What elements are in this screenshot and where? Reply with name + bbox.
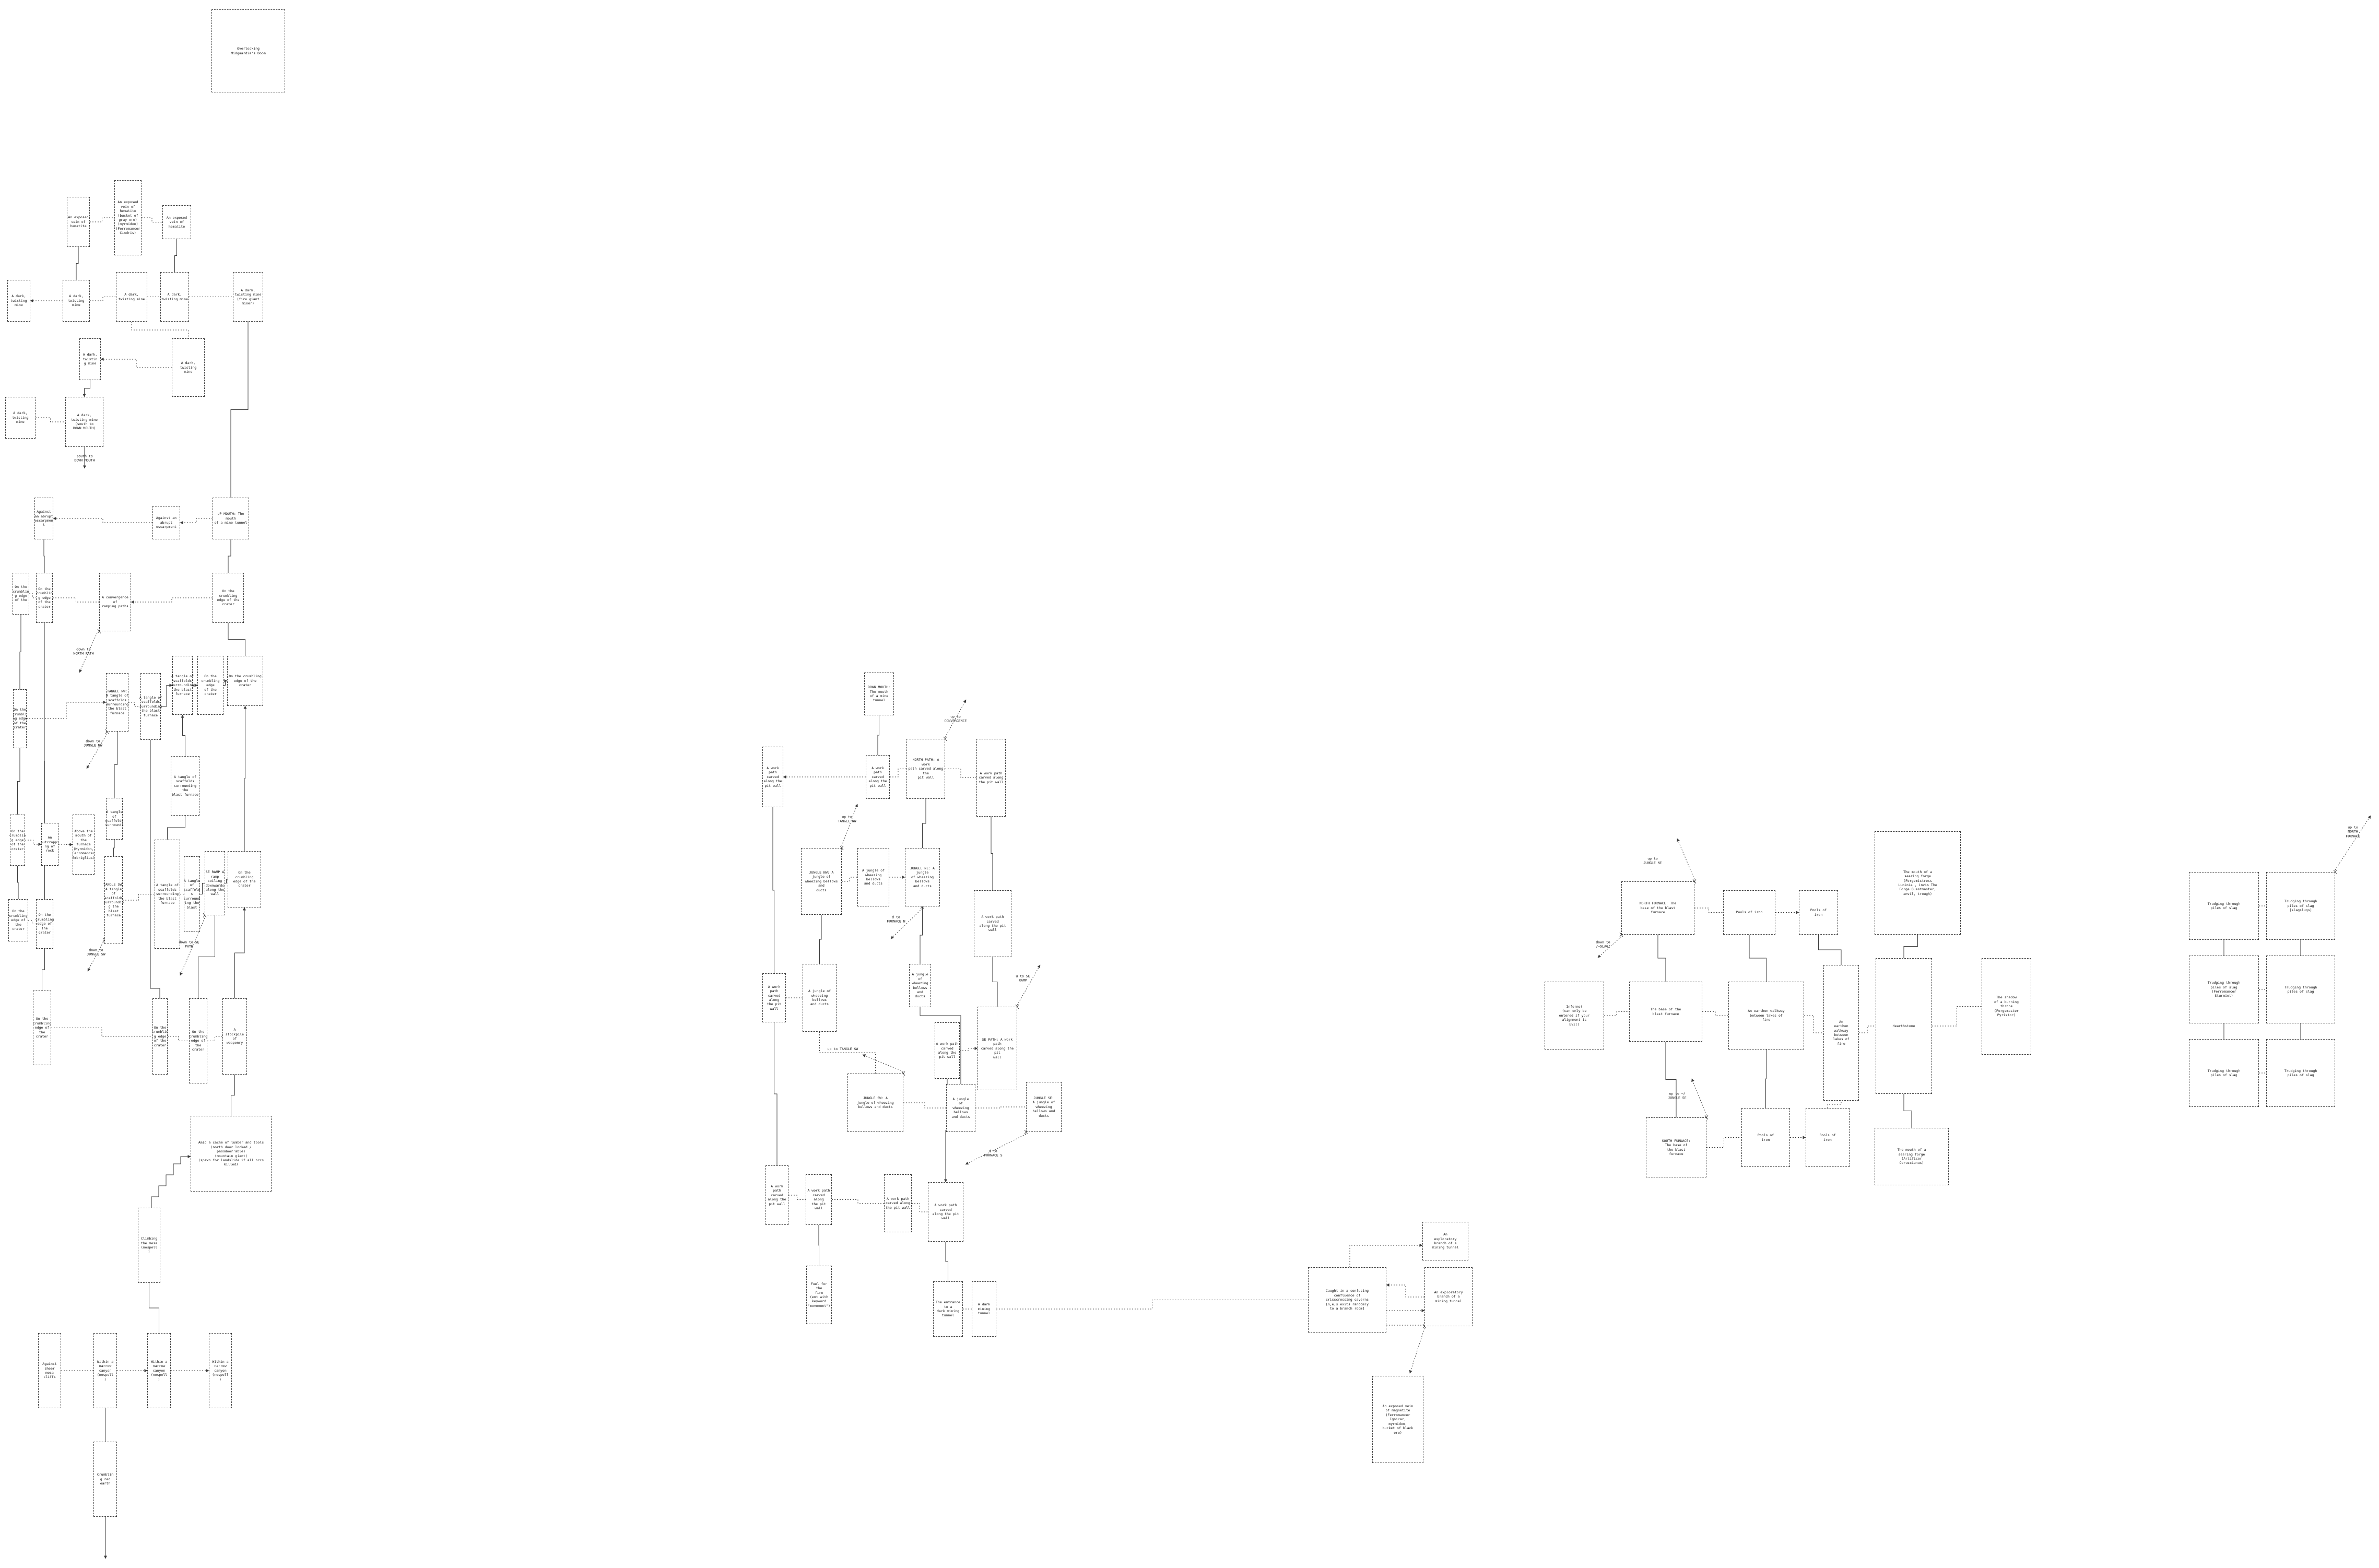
room-box-b79: Pools of iron [1723,890,1775,935]
room-box-b81: The mouth of a searing forge (Forgemistr… [1875,831,1961,935]
connector [207,1036,222,1041]
connector [231,1075,235,1116]
room-box-b69: A work path carved along the pit wall [884,1174,912,1232]
connector [1904,935,1918,958]
connector [863,1055,903,1071]
connector [25,840,41,844]
connector [90,218,114,222]
room-box-b80: Pools of iron [1799,890,1838,935]
room-box-b61: A jungle of wheezing bellows and ducts [909,964,931,1007]
connector [2335,816,2371,870]
room-box-b43: Amid a cache of lumber and tools (north … [191,1116,272,1192]
room-box-b73: A dark mining tunnel [972,1281,996,1337]
connector [85,380,90,397]
room-box-b75: An exploratory branch of a mining tunnel [1422,1222,1468,1260]
room-box-b15: Against an abrupt escarpment [152,506,180,539]
room-box-b50: DOWN MOUTH: The mouth of a mine tunnel [864,673,894,715]
room-box-b02: An exposed vein of hematite [67,197,90,247]
room-box-b65: A jungle of wheezing bellows and ducts [946,1084,975,1132]
connector [1904,1094,1912,1128]
room-box-b14: Against an abrupt escarpmen t [34,498,53,539]
connector [114,840,115,856]
connector [58,844,73,845]
room-box-b66: JUNGLE SE: A jungle of wheezing bellows … [1026,1082,1062,1132]
room-box-b10: A dark, twistin g mine [79,338,101,380]
connector [132,322,189,338]
ramp-label: south to DOWN MOUTH [74,454,95,463]
room-box-b40: On the crumblin g edge of the crater [152,998,168,1075]
room-box-b63: SE PATH: A work path carved along the pi… [977,1007,1017,1090]
connector [890,769,906,777]
room-box-b87: The shadow of a burning throne (Forgemas… [1982,958,2031,1055]
room-box-b27: A tangle of scaffolds surroundi [106,798,123,840]
room-box-b35: SE RAMP A ramp coiling downwards along t… [205,851,225,915]
connector [20,615,21,689]
room-box-b24: A tangle of scaffolds surrounding the bl… [172,656,193,715]
room-box-b68: A work path carved along the pit wall [806,1174,832,1225]
room-box-b39: On the crumbling edge of the crater [33,991,51,1065]
room-box-b74: Caught in a confusing confluence of cris… [1308,1267,1386,1333]
room-box-b54: A work path carved along the pit wall [976,739,1006,817]
room-box-b90: Pools of iron [1806,1108,1850,1167]
connector [53,518,152,523]
ramp-label: up to TANGLE NW [838,815,856,824]
ramp-label: down to NORTH PATH [73,647,93,656]
room-box-b91: The mouth of a searing forge (Artificer … [1875,1128,1949,1185]
connector [131,598,213,602]
connector [923,799,926,848]
room-box-b19: A convergence of ramping paths [99,573,131,631]
room-box-b29: On the crumblin g edge of the crater [10,815,25,866]
connector [101,359,172,368]
connector [1666,1042,1676,1117]
room-box-b53: NORTH PATH: A work path carved along the… [906,739,945,799]
room-box-b01: Overlooking Midgaardia's Doom [211,9,285,92]
room-box-b84: An earthen walkway between lakes of fire [1728,982,1804,1050]
room-box-b07: A dark, twisting mine [116,272,147,322]
connector [1386,1285,1424,1297]
connector [1692,1079,1706,1115]
connector [128,702,140,706]
connector [76,247,78,280]
connector [228,623,245,656]
room-box-b26: On the crumbling edge of the crater [227,656,263,706]
connector [90,297,116,301]
room-box-b59: A work path carved along the pit wall [762,973,786,1022]
map-connector-layer [0,0,2379,1568]
room-box-b20: On the crumbling edge of the crater [213,573,244,623]
room-box-b52: A work path carved along the pit wall [866,755,890,799]
connector [114,732,117,798]
room-box-b32: TANGLE SW: A tangle of scaffolds surroun… [104,856,123,944]
connector [123,894,155,901]
room-box-b05: A dark, twisting mine [7,280,30,322]
connector [231,322,248,498]
connector [1410,1328,1424,1373]
connector [960,1048,977,1051]
connector [1017,965,1040,1005]
connector [175,239,177,272]
room-box-b89: Pools of iron [1741,1108,1790,1167]
connector [27,702,106,719]
connector [820,1032,876,1074]
connector [1828,1101,1841,1108]
connector [788,1195,806,1200]
connector [945,769,976,778]
connector [235,907,245,998]
room-box-b36: On the crumbling edge of the crater [228,851,261,907]
connector [773,807,774,973]
room-box-b09: A dark, twisting mine (fire giant miner) [233,272,263,322]
connector [1706,1138,1741,1148]
connector [878,715,879,755]
connector [842,804,857,846]
connector [168,816,185,840]
room-box-b64: JUNGLE SW: A jungle of wheezing bellows … [847,1074,903,1132]
connector [1749,935,1766,982]
ramp-label: d to FURNACE N [887,915,905,924]
connector [29,594,36,598]
connector [53,598,99,602]
room-box-b06: A dark, twisting mine [63,280,90,322]
room-box-b03: An exposed vein of hematite (bucket of g… [114,180,142,255]
room-box-b08: A dark, twisting mine [160,272,189,322]
connector [991,817,993,890]
room-box-b45: Against sheer mesa cliffs [38,1333,61,1408]
connector [44,539,44,573]
connector [51,1028,152,1037]
room-box-b82: Inferno! (can only be entered if your al… [1545,982,1604,1050]
room-box-b56: A jungle of wheezing bellows and ducts [857,848,889,906]
room-box-b18: On the crumblin g edge of the crater [36,573,53,623]
room-box-b85: An earthen walkway between lakes of fire [1823,965,1859,1101]
room-box-b31: Above the mouth of the furnace (Myrmidon… [73,815,95,875]
connector [244,706,245,851]
connector [946,1242,948,1281]
room-box-b21: On the crumbli ng edge of the crater [13,689,27,748]
room-box-b72: The entrance to a dark mining tunnel [933,1281,963,1337]
room-box-b77: An exposed vein of magnetite (Ferromance… [1372,1376,1423,1463]
connector [142,218,162,222]
room-box-b23: A tangle of scaffolds surrounding the bl… [140,673,161,740]
ramp-label: up to CONVERGENCE [944,715,967,724]
room-box-b60: A jungle of wheezing bellows and ducts [803,964,837,1032]
room-box-b70: A work path carved along the pit wall [928,1182,963,1242]
room-box-b11: A dark, twisting mine [172,338,205,397]
room-box-b62: A work path carved along the pit wall [935,1022,960,1079]
connector [996,1300,1308,1310]
room-box-b22: TANGLE NW: A tangle of scaffolds surroun… [106,673,128,732]
room-box-b04: An exposed vein of hematite [162,205,191,239]
ramp-label: down to /—SLAG/ [1596,940,1610,949]
connector [18,748,20,815]
room-box-b95: Trudging through piles of slag [2266,956,2335,1023]
connector [161,686,172,707]
room-box-b37: On the crumbling edge of the crater [8,899,28,941]
connector [28,921,36,924]
connector [1350,1245,1422,1267]
connector [975,1107,1026,1108]
connector [18,866,19,899]
room-box-b67: A work path carved along the pit wall [765,1165,788,1225]
connector [149,1283,159,1333]
connector [1677,839,1694,879]
connector [1932,1007,1982,1027]
room-box-b71: Fuel for the fire (ent with keyword "mov… [806,1266,832,1324]
room-box-b92: Trudging through piles of slag [2189,872,2259,940]
connector [903,1103,946,1108]
room-box-b78: NORTH FURNACE: The base of the blast fur… [1621,881,1694,935]
ramp-label: down to JUNGLE NW [84,739,102,748]
connector [1766,1050,1766,1108]
connector [228,539,231,573]
connector [774,1022,778,1165]
connector [920,906,923,964]
room-box-b86: Hearthstone [1876,958,1932,1094]
connector [1694,908,1723,913]
ramp-label: up to NORTH FURNACE [2340,825,2366,838]
room-box-b47: Within a narrow canyon (nospell ) [147,1333,171,1408]
room-box-b34: A tangle of scaffold s surround ing the … [184,856,200,932]
room-box-b33: A tangle of scaffolds surrounding the bl… [155,840,180,949]
room-box-b42: A stockpile of weaponry [222,998,247,1075]
connector [42,949,45,991]
connector [183,715,185,756]
connector [912,1204,928,1212]
ramp-label: up to —/ JUNGLE SE [1668,1092,1686,1101]
room-box-b44: Climbing the mesa (nospell ) [138,1208,160,1283]
connector [832,1200,884,1204]
connector [820,915,822,964]
connector [842,877,857,881]
room-box-b25: On the crumbling edge of the crater [197,656,223,715]
room-box-b16: UP MOUTH: The mouth of a mine tunnel [213,498,249,539]
room-box-b41: On the crumbling edge of the crater [189,998,207,1083]
ramp-label: up to TANGLE SW [828,1047,858,1051]
mud-area-map: Overlooking Midgaardia's DoomAn exposed … [0,0,2379,1568]
room-box-b38: On the crumbling edge of the crater [36,899,53,949]
connector [151,1157,191,1208]
connector [1702,1012,1728,1016]
connector [36,418,65,422]
connector [1658,935,1666,982]
connector [168,1036,189,1041]
room-box-b13: A dark, twisting mine (south to DOWN MOU… [65,397,103,447]
connector [200,883,205,894]
room-box-b12: A dark, twisting mine [5,397,36,439]
ramp-label: up to JUNGLE NE [1643,857,1662,866]
room-box-b55: JUNGLE NW: A jungle of wheezing bellows … [801,848,842,915]
room-box-b96: Trudging through piles of slag [2189,1039,2259,1107]
room-box-b49: Crumblin g red earth [93,1442,117,1517]
room-box-b88: SOUTH FURNACE: The base of the blast fur… [1646,1117,1706,1177]
ramp-label: down to SE PATH [179,940,199,949]
connector [223,681,227,686]
room-box-b58: A work path carved along the pit wall [974,890,1011,957]
room-box-b76: An exploratory branch of a mining tunnel [1424,1267,1473,1326]
room-box-b51: A work path carved along the pit wall [762,747,783,807]
connector [1604,1012,1629,1016]
connector [180,518,213,523]
ramp-label: u to SE RAMP [1016,974,1030,983]
connector [993,957,997,1007]
room-box-b28: A tangle of scaffolds surrounding the bl… [171,756,199,816]
room-box-b93: Trudging through piles of slag [slagslug… [2266,872,2335,940]
room-box-b94: Trudging through piles of slag (Ferroman… [2189,956,2259,1023]
room-box-b46: Within a narrow canyon (nospell ) [93,1333,117,1408]
room-box-b17: On the crumblin g edge of the [13,573,29,615]
connector [1819,935,1842,965]
connector [1804,1016,1823,1033]
room-box-b97: Trudging through piles of slag [2266,1039,2335,1107]
room-box-b30: An outcroppi ng of rock [41,823,58,866]
room-box-b83: The base of the blast furnace [1629,982,1702,1042]
ramp-label: down to JUNGLE SW [87,948,105,957]
connector [1859,1026,1876,1033]
ramp-label: d to FURNACE S [984,1149,1002,1158]
connector [819,1225,819,1266]
room-box-b57: JUNGLE NE: A jungle of wheezing bellows … [905,848,940,906]
room-box-b48: Within a narrow canyon (nospell ) [209,1333,232,1408]
